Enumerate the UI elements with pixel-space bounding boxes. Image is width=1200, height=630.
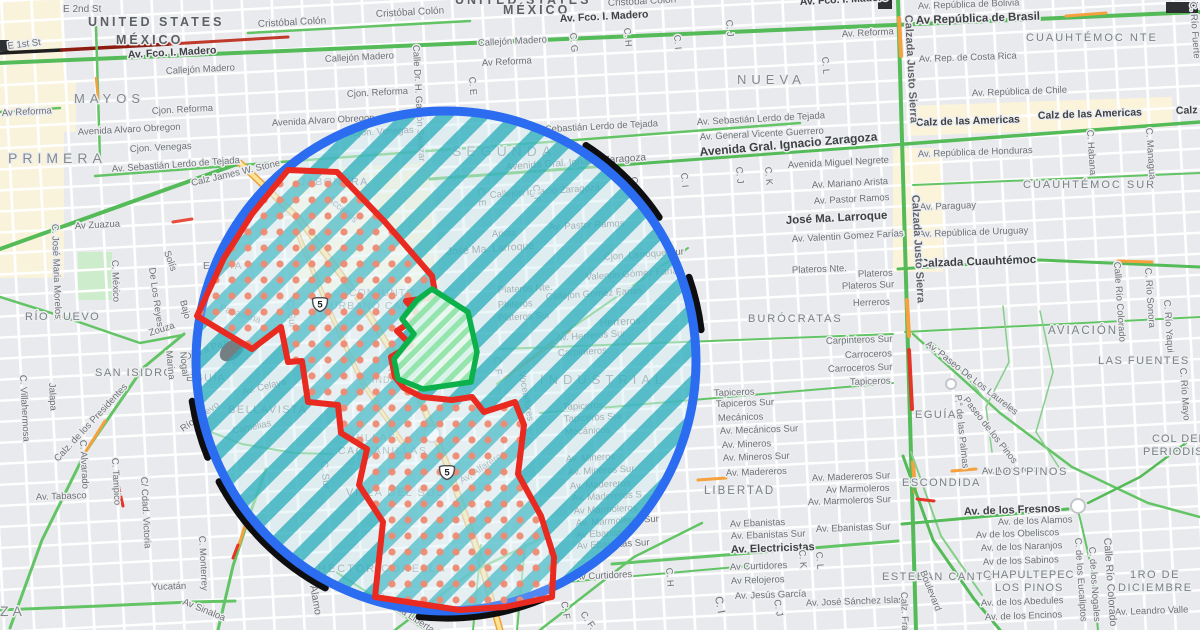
street-label: Calz. Fra	[898, 592, 910, 630]
map-svg[interactable]: E 2nd StUNITED STATESMÉXICOE 1st StCrist…	[0, 0, 1200, 630]
street-label: Av Curtidores	[730, 560, 788, 573]
district-label: LOS PINOS	[995, 582, 1063, 594]
district-label: LAS FUENTES	[1098, 355, 1190, 367]
district-label: PRIMERA	[8, 150, 107, 166]
district-label: MAYOS	[74, 91, 145, 106]
street-label: C. J	[723, 19, 735, 37]
road-line	[698, 478, 726, 480]
street-label: Av. Tabasco	[36, 490, 87, 503]
district-label: CUAUHTÉMOC NTE	[1026, 31, 1158, 44]
district-label: LOS PINOS	[995, 466, 1068, 478]
street-label: C. J	[733, 166, 745, 184]
street-label: C. K	[762, 166, 775, 186]
street-label: C. E	[466, 76, 479, 95]
district-label: ESCONDIDA	[902, 477, 981, 489]
street-label: Herreros	[853, 297, 891, 309]
district-label: EGUÍA	[915, 408, 957, 421]
street-label: Mecánicos	[718, 411, 764, 424]
street-label: Plateros Nte.	[792, 263, 847, 276]
street-label: C. G	[567, 32, 580, 52]
street-label: C. L	[813, 551, 825, 569]
street-label: Plateros	[858, 268, 893, 280]
map-canvas[interactable]: E 2nd StUNITED STATESMÉXICOE 1st StCrist…	[0, 0, 1200, 630]
street-label: Yucatán	[152, 581, 187, 593]
roundabout	[946, 379, 956, 389]
street-label: Av Relojeros	[731, 574, 785, 587]
svg-text:5: 5	[317, 300, 323, 311]
road-line	[907, 300, 909, 336]
street-label: Carroceros	[845, 348, 893, 361]
street-label: C. I	[671, 34, 683, 50]
street-label: Carpinteros Sur	[826, 334, 893, 347]
street-label: C. México	[109, 260, 121, 303]
street-label: C. H	[663, 567, 676, 587]
svg-text:5: 5	[444, 468, 450, 479]
street-label: Av. Madereros	[726, 466, 787, 479]
street-label: Av. Mineros	[722, 438, 772, 451]
street-label: Av. Paraguay	[920, 200, 977, 213]
overlays-layer[interactable]	[192, 111, 701, 618]
street-label: E 2nd St	[63, 4, 102, 15]
district-label: BURÓCRATAS	[748, 312, 843, 325]
road-line	[1118, 261, 1152, 262]
district-label: MÉXICO	[116, 32, 183, 47]
street-label: Calz	[1176, 104, 1198, 117]
road-line	[952, 469, 976, 471]
street-label: Tapiceros Sur	[716, 397, 774, 410]
street-label: C. K	[796, 549, 809, 569]
district-label: ESTEBAN CANTÚ	[882, 570, 994, 583]
district-label: 1RO DE	[1130, 569, 1180, 581]
street-label: C. H	[621, 27, 634, 47]
road-line	[899, 18, 901, 56]
district-label: NUEVA	[737, 72, 806, 87]
street-label: Carroceros Sur	[828, 362, 893, 375]
district-label: AVIACIÓN	[1048, 324, 1118, 337]
district-label: CUAUHTÉMOC SUR	[1023, 178, 1156, 191]
district-label: DICIEMBRE	[1118, 582, 1193, 594]
district-label: SAN ISIDRO	[95, 367, 174, 379]
street-label: Jalapa	[46, 383, 58, 412]
district-label: PERIODISTA	[1143, 446, 1200, 458]
street-label: Plateros Sur	[842, 279, 895, 292]
street-label: C. I	[678, 172, 690, 188]
district-label: COL DEL	[1152, 433, 1200, 445]
street-label: Tapiceros	[850, 376, 891, 388]
district-label: ZA	[0, 603, 26, 619]
road-line	[917, 499, 934, 501]
district-label: CHAPULTEPEC	[983, 569, 1074, 581]
roundabout	[1071, 499, 1085, 513]
district-label: LIBERTAD	[704, 485, 775, 497]
street-label: Av. Mineros Sur	[723, 451, 790, 464]
district-label: UNITED STATES	[88, 15, 224, 29]
street-label: Av Ebanistas	[730, 517, 786, 530]
street-label: C. L	[819, 56, 831, 74]
